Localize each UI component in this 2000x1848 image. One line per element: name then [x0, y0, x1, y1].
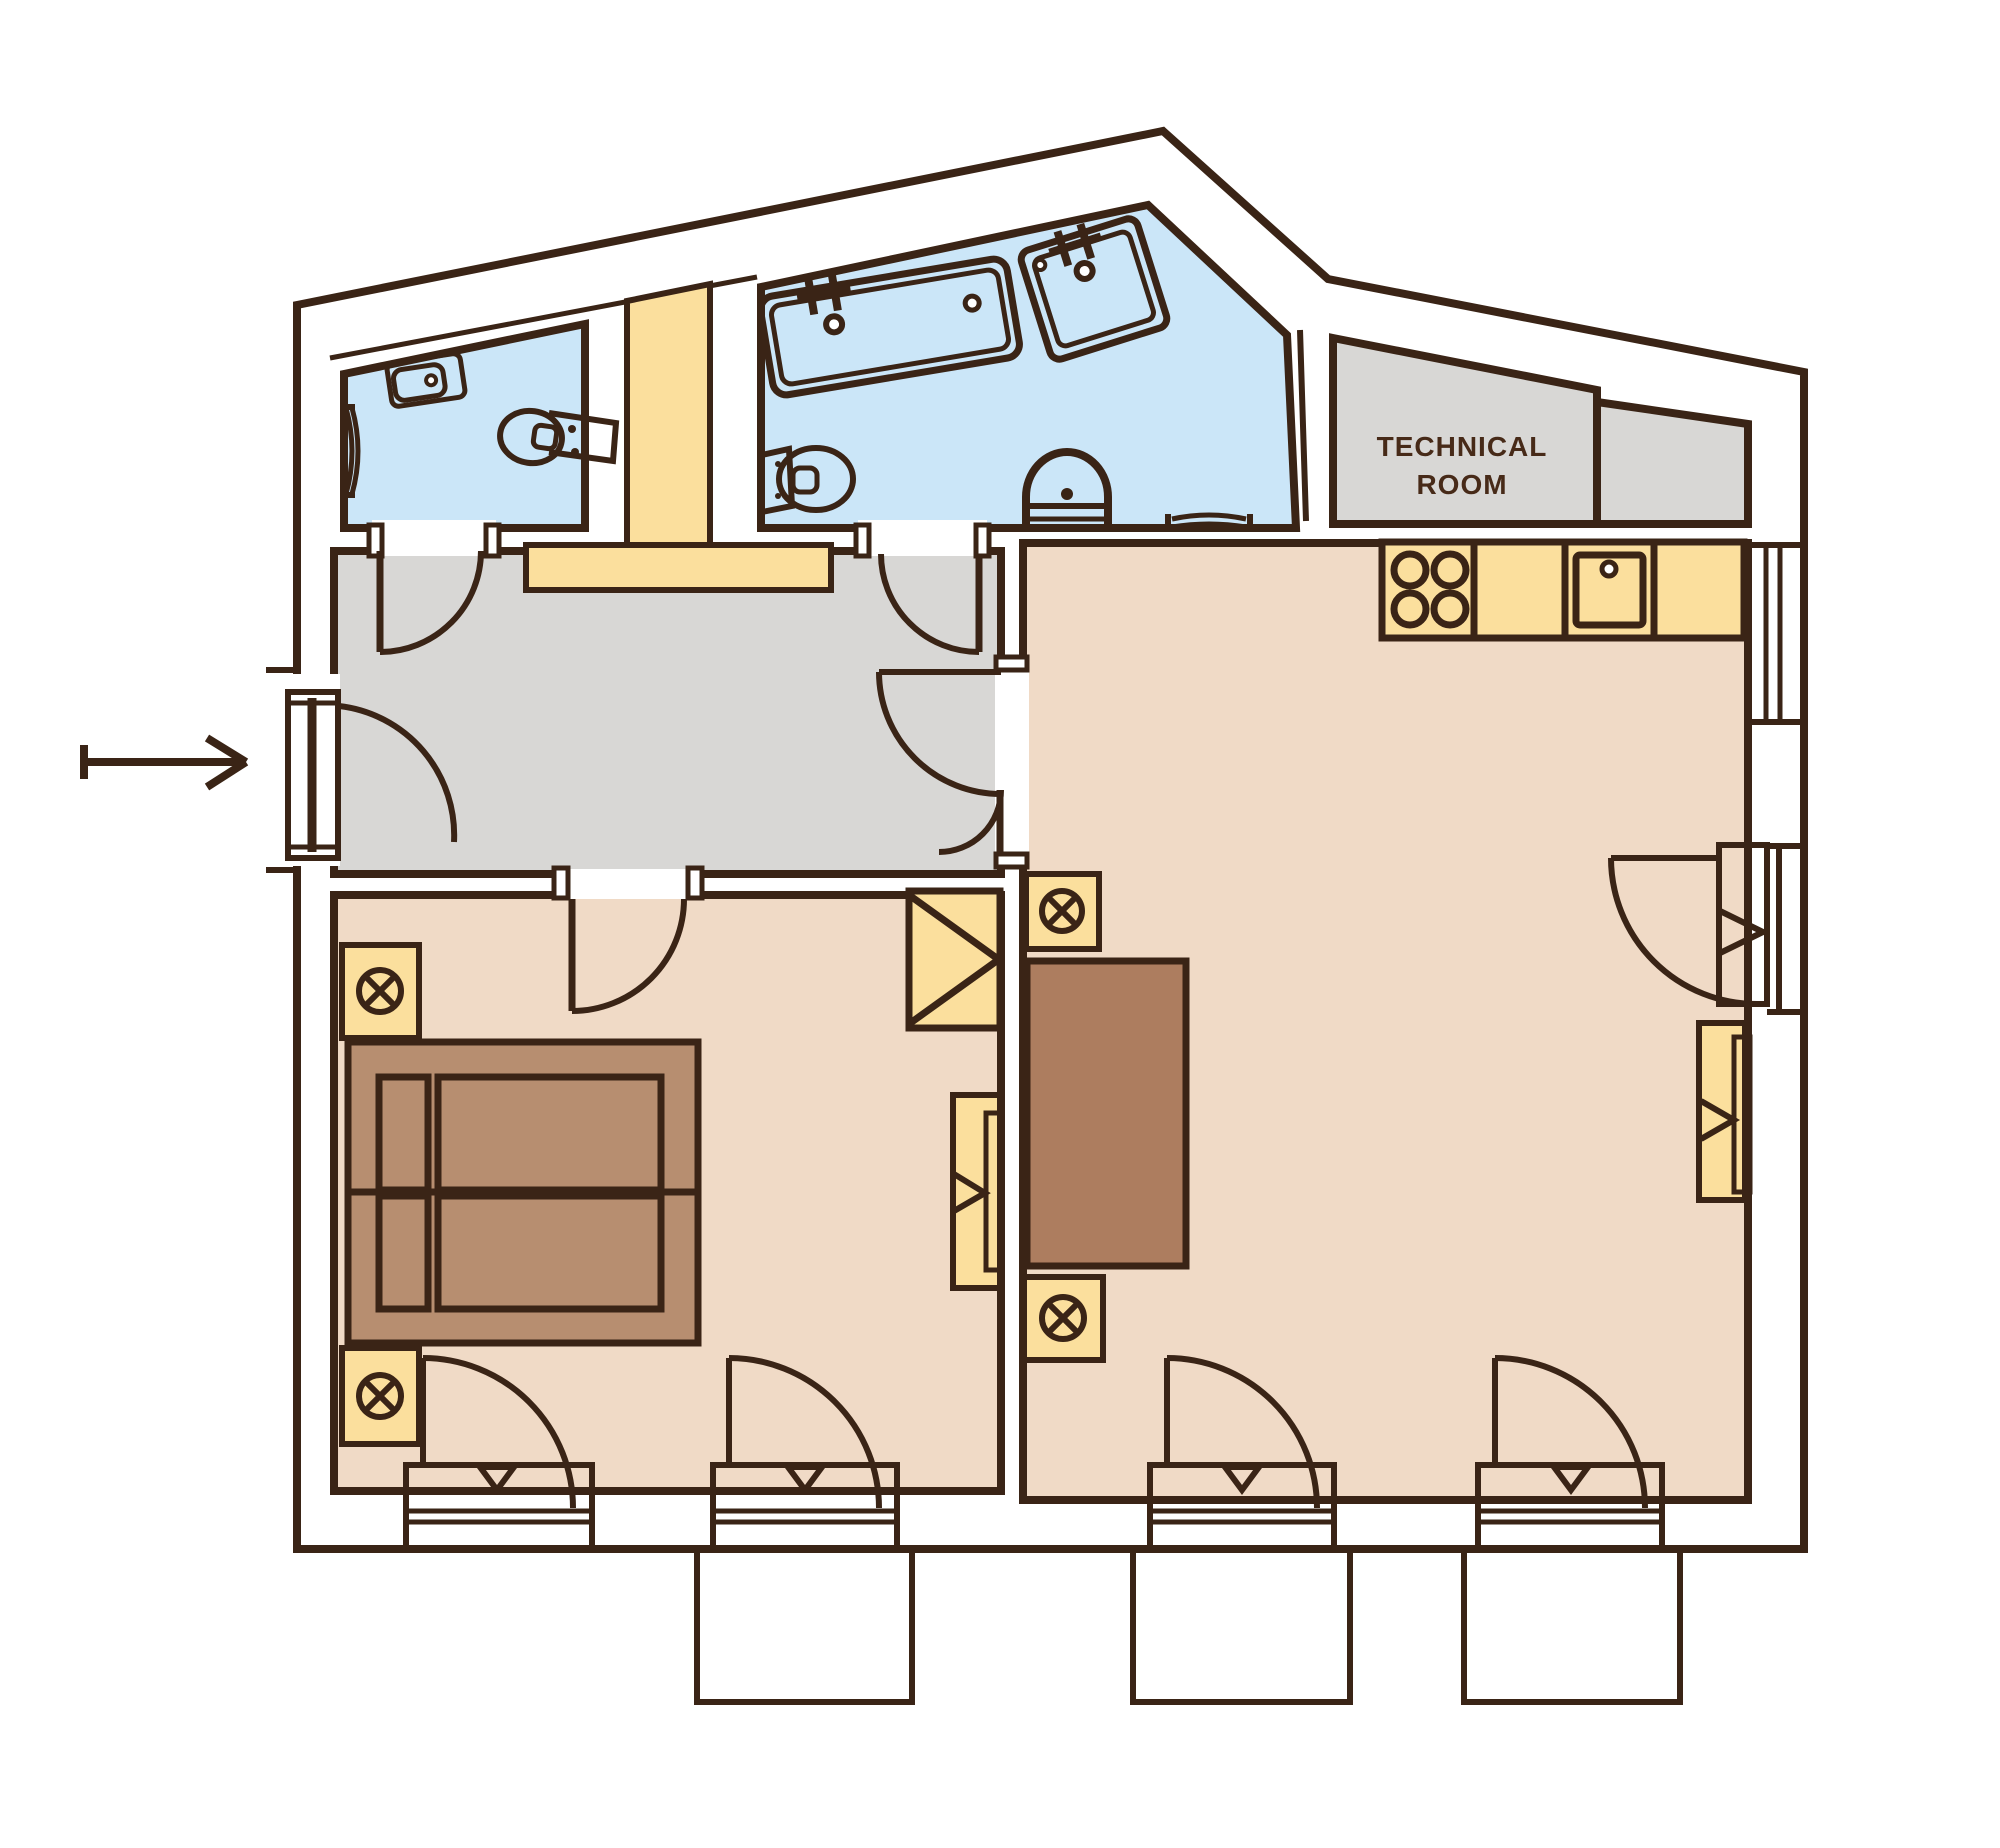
svg-text:TECHNICAL: TECHNICAL — [1377, 431, 1548, 462]
svg-text:ROOM: ROOM — [1416, 469, 1507, 500]
